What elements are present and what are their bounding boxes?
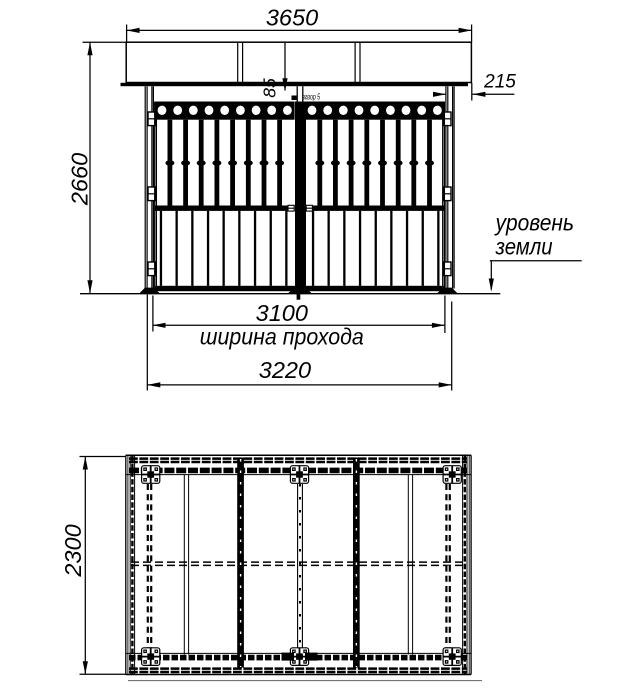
svg-text:2660: 2660 [67, 153, 93, 206]
svg-text:85: 85 [260, 78, 280, 98]
svg-text:3100: 3100 [256, 300, 308, 326]
svg-text:2300: 2300 [60, 524, 86, 577]
svg-text:уровень: уровень [494, 210, 574, 236]
svg-text:215: 215 [483, 72, 516, 93]
svg-text:3220: 3220 [259, 357, 311, 383]
svg-text:3650: 3650 [266, 5, 318, 31]
svg-text:земли: земли [495, 234, 553, 260]
svg-text:зазор 5: зазор 5 [302, 93, 320, 102]
svg-text:ширина прохода: ширина прохода [200, 324, 364, 350]
